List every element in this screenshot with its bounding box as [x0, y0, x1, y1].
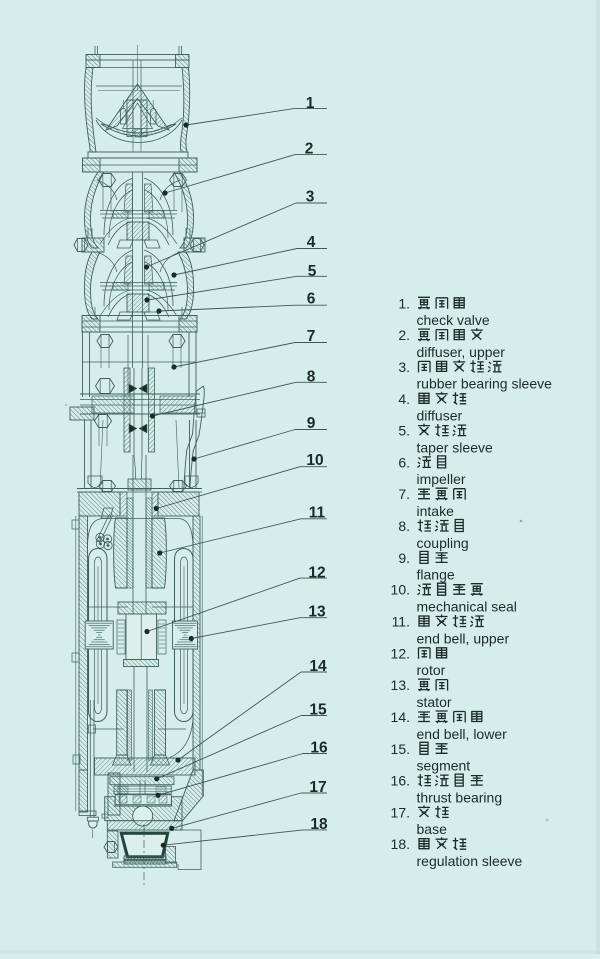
svg-text:1: 1 [306, 95, 315, 112]
svg-text:intake: intake [417, 503, 455, 519]
svg-text:impeller: impeller [417, 471, 466, 487]
svg-text:14: 14 [309, 658, 327, 675]
svg-text:coupling: coupling [417, 535, 469, 551]
svg-text:6.: 6. [398, 454, 410, 470]
svg-text:5: 5 [308, 263, 317, 280]
svg-text:4: 4 [307, 234, 316, 251]
svg-text:3: 3 [306, 189, 315, 206]
svg-text:18: 18 [310, 816, 328, 833]
svg-text:16: 16 [310, 739, 328, 756]
svg-text:14.: 14. [391, 709, 410, 725]
svg-text:flange: flange [417, 567, 455, 583]
svg-text:15: 15 [309, 701, 327, 718]
svg-text:rubber bearing sleeve: rubber bearing sleeve [417, 376, 553, 392]
svg-text:12: 12 [308, 564, 325, 581]
svg-text:2: 2 [305, 141, 314, 158]
svg-text:11.: 11. [392, 614, 410, 630]
svg-text:mechanical seal: mechanical seal [417, 599, 517, 615]
svg-text:9: 9 [307, 415, 316, 432]
svg-text:base: base [417, 821, 448, 837]
svg-text:12.: 12. [391, 645, 410, 661]
svg-text:10: 10 [306, 452, 323, 469]
svg-text:2.: 2. [398, 327, 410, 343]
svg-text:7: 7 [307, 328, 316, 345]
svg-text:stator: stator [417, 694, 452, 710]
svg-text:17: 17 [309, 779, 326, 796]
svg-text:16.: 16. [391, 773, 410, 789]
svg-text:1.: 1. [398, 295, 410, 311]
svg-text:8: 8 [307, 369, 316, 386]
svg-text:5.: 5. [398, 423, 410, 439]
svg-text:6: 6 [307, 291, 316, 308]
svg-text:taper sleeve: taper sleeve [417, 439, 493, 455]
svg-text:11: 11 [309, 504, 326, 521]
svg-text:segment: segment [417, 758, 471, 774]
svg-text:17.: 17. [391, 804, 410, 820]
svg-text:diffuser: diffuser [417, 408, 463, 424]
svg-text:end bell, upper: end bell, upper [417, 630, 510, 646]
svg-text:8.: 8. [398, 518, 410, 534]
svg-text:10.: 10. [391, 582, 410, 598]
svg-text:diffuser, upper: diffuser, upper [417, 344, 506, 360]
svg-text:7.: 7. [398, 486, 410, 502]
svg-text:18.: 18. [391, 836, 410, 852]
svg-text:13: 13 [308, 604, 326, 621]
svg-text:thrust bearing: thrust bearing [417, 789, 503, 805]
svg-text:check valve: check valve [417, 312, 490, 328]
svg-text:9.: 9. [398, 550, 410, 566]
svg-text:15.: 15. [391, 741, 410, 757]
svg-text:regulation sleeve: regulation sleeve [417, 853, 523, 869]
svg-text:rotor: rotor [417, 662, 446, 678]
svg-text:13.: 13. [391, 677, 410, 693]
svg-text:4.: 4. [398, 391, 410, 407]
svg-text:3.: 3. [398, 359, 410, 375]
svg-text:end bell, lower: end bell, lower [417, 726, 508, 742]
